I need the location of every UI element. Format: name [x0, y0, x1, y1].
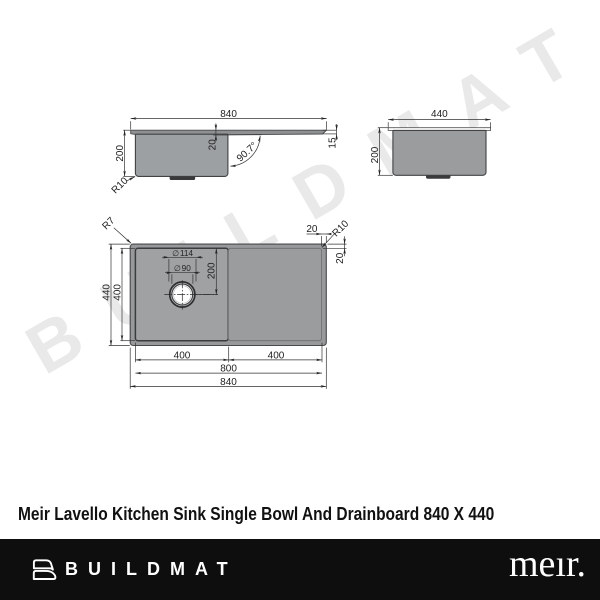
svg-text:200: 200 — [370, 146, 381, 163]
svg-text:20: 20 — [306, 224, 318, 235]
svg-text:200: 200 — [207, 262, 218, 279]
svg-text:440: 440 — [101, 284, 112, 301]
svg-text:440: 440 — [431, 109, 448, 120]
svg-text:840: 840 — [220, 109, 237, 120]
svg-text:400: 400 — [112, 284, 123, 301]
svg-text:840: 840 — [220, 377, 237, 388]
svg-text:R7: R7 — [100, 215, 117, 232]
svg-text:400: 400 — [268, 350, 285, 361]
svg-text:R10: R10 — [110, 175, 131, 196]
svg-text:∅ 90: ∅ 90 — [174, 264, 191, 273]
svg-text:400: 400 — [174, 350, 191, 361]
svg-text:15: 15 — [327, 137, 338, 149]
svg-text:∅ 114: ∅ 114 — [172, 249, 193, 258]
svg-text:90.7°: 90.7° — [235, 140, 260, 164]
svg-text:20: 20 — [335, 252, 346, 264]
svg-text:200: 200 — [115, 145, 126, 162]
svg-text:800: 800 — [220, 364, 237, 375]
svg-text:20: 20 — [207, 139, 218, 151]
